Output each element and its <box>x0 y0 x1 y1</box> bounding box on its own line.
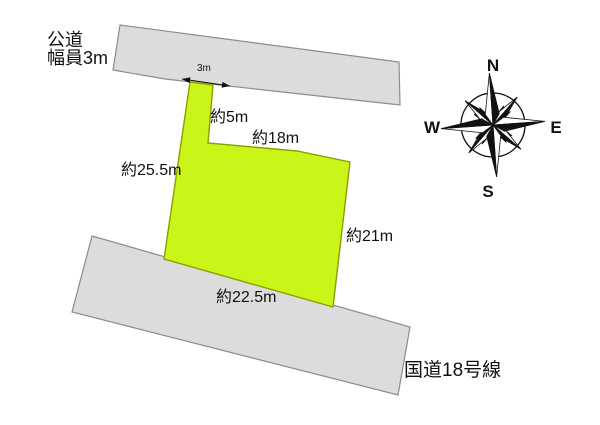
land-plot-diagram: 公道 幅員3m 3m 約5m 約18m 約25.5m 約21m 約22.5m 国… <box>0 0 600 425</box>
top-road-label-line1: 公道 <box>47 30 83 50</box>
top-road-label-line2: 幅員3m <box>47 48 108 68</box>
top-road-shape <box>113 25 400 105</box>
dimension-label-west: 約25.5m <box>121 161 181 179</box>
frontage-width-label: 3m <box>197 63 211 74</box>
compass-south-label: S <box>482 182 493 201</box>
compass-north-label: N <box>487 56 499 75</box>
plot-diagram-canvas: 公道 幅員3m 3m 約5m 約18m 約25.5m 約21m 約22.5m 国… <box>0 0 600 425</box>
compass-west-label: W <box>424 118 441 137</box>
compass-east-label: E <box>550 118 561 137</box>
dimension-label-pole: 約5m <box>210 108 248 126</box>
bottom-road-label: 国道18号線 <box>404 359 501 381</box>
dimension-label-top: 約18m <box>252 129 299 147</box>
dimension-label-south: 約22.5m <box>216 288 276 306</box>
compass-rose-icon: N E S W <box>424 56 562 201</box>
dimension-label-east: 約21m <box>346 227 393 245</box>
compass-rose-graphic <box>437 69 548 180</box>
